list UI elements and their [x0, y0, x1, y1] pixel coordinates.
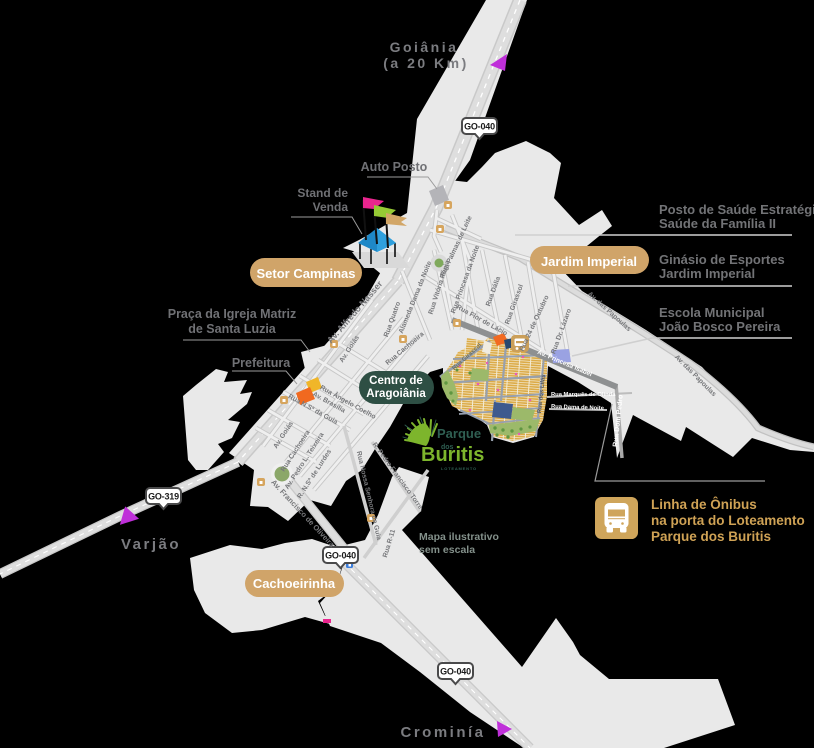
svg-text:Mapa ilustrativo: Mapa ilustrativo	[419, 531, 499, 543]
svg-text:Praça da Igreja Matriz: Praça da Igreja Matriz	[168, 307, 297, 321]
svg-text:Linha de Ônibus: Linha de Ônibus	[651, 497, 757, 512]
svg-text:Setor Campinas: Setor Campinas	[257, 266, 356, 281]
svg-text:LOTEAMENTO: LOTEAMENTO	[441, 466, 477, 471]
svg-text:Saúde da Família II: Saúde da Família II	[659, 216, 776, 231]
svg-text:Prefeitura: Prefeitura	[232, 356, 291, 370]
svg-text:Auto Posto: Auto Posto	[361, 160, 428, 174]
svg-text:sem escala: sem escala	[419, 544, 475, 556]
svg-text:Parque dos Buritis: Parque dos Buritis	[651, 529, 771, 544]
svg-text:Centro de: Centro de	[369, 375, 423, 387]
svg-text:GO-040: GO-040	[440, 667, 471, 677]
svg-text:Varjão: Varjão	[121, 536, 181, 553]
svg-text:Parque: Parque	[437, 426, 481, 441]
svg-text:Goiânia: Goiânia	[390, 39, 459, 55]
svg-text:Crominía: Crominía	[400, 724, 485, 741]
svg-text:GO-040: GO-040	[325, 551, 356, 561]
svg-text:GO-319: GO-319	[148, 492, 179, 502]
svg-text:Venda: Venda	[313, 200, 349, 214]
svg-text:Jardim Imperial: Jardim Imperial	[541, 254, 637, 269]
svg-text:GO-040: GO-040	[464, 122, 495, 132]
svg-text:(a 20 Km): (a 20 Km)	[383, 55, 469, 71]
svg-text:Aragoiânia: Aragoiânia	[366, 388, 426, 400]
svg-text:Ginásio de Esportes: Ginásio de Esportes	[659, 252, 785, 267]
svg-text:Jardim Imperial: Jardim Imperial	[659, 266, 755, 281]
svg-text:de Santa Luzia: de Santa Luzia	[188, 322, 277, 336]
svg-text:Cachoeirinha: Cachoeirinha	[253, 576, 336, 591]
svg-text:Rua Marquês de Olinda: Rua Marquês de Olinda	[551, 392, 616, 398]
svg-text:na porta do Loteamento: na porta do Loteamento	[651, 513, 805, 528]
svg-text:Buritis: Buritis	[421, 444, 484, 466]
svg-text:João Bosco Pereira: João Bosco Pereira	[659, 319, 781, 334]
svg-text:Posto de Saúde Estratégia: Posto de Saúde Estratégia	[659, 202, 814, 217]
svg-text:Stand de: Stand de	[297, 186, 348, 200]
svg-text:Escola Municipal: Escola Municipal	[659, 305, 764, 320]
